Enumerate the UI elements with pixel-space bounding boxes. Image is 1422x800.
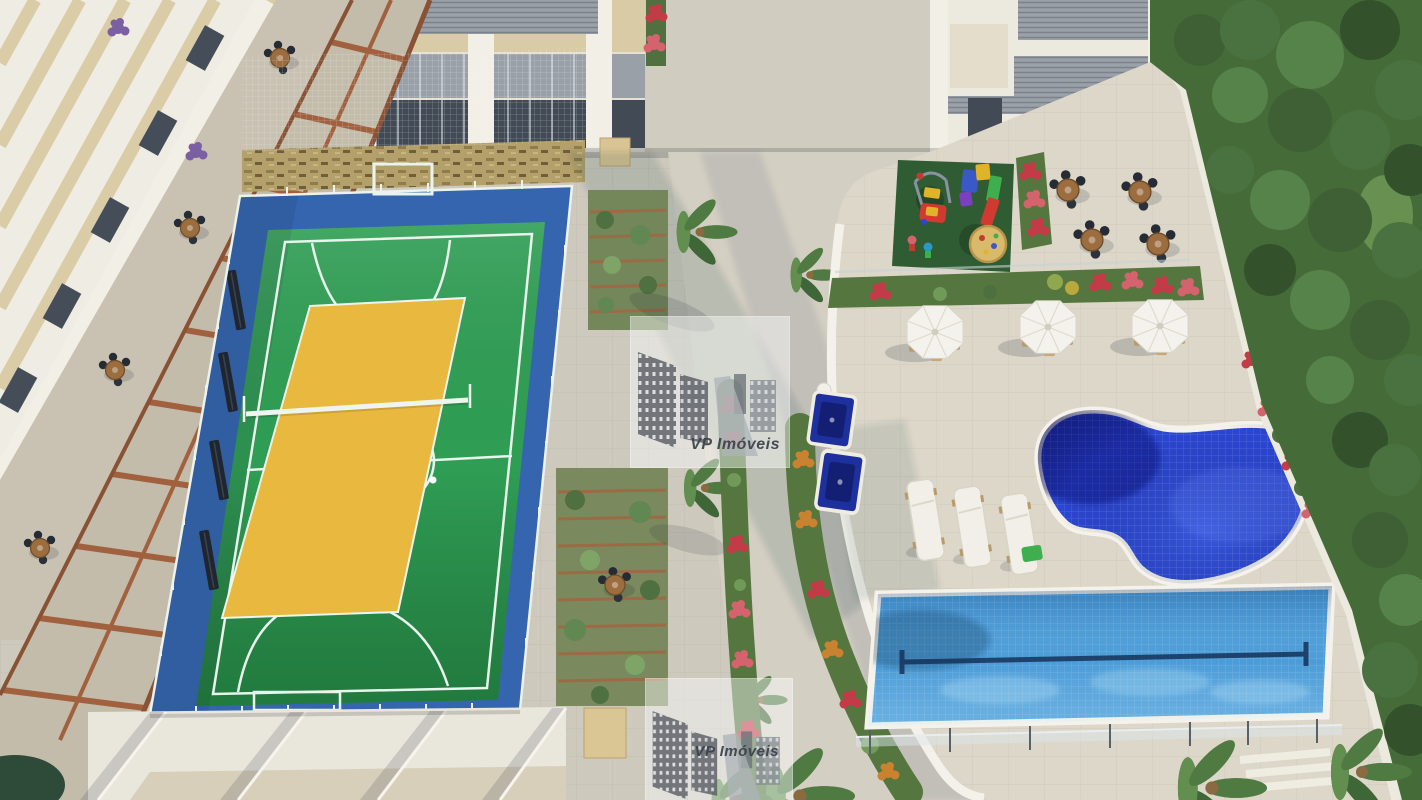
playground xyxy=(892,160,1014,272)
ball xyxy=(430,477,437,484)
umbrella-group xyxy=(885,300,1188,362)
lap-pool xyxy=(850,580,1340,730)
green-towel xyxy=(1021,545,1043,563)
aerial-render: VP Imóveis VP Imóveis xyxy=(0,0,1422,800)
toy-car xyxy=(919,203,947,225)
storage-box xyxy=(584,708,626,758)
sandbox xyxy=(970,226,1006,262)
spa-tub xyxy=(808,391,857,448)
spa-tub xyxy=(815,450,865,514)
watermark-buildings-graphic xyxy=(645,678,793,800)
watermark-logo: VP Imóveis xyxy=(630,316,790,468)
lower-pergola-garden xyxy=(556,468,668,706)
watermark-text: VP Imóveis xyxy=(695,743,779,760)
watermark-logo-bottom: VP Imóveis xyxy=(645,678,793,800)
watermark-text: VP Imóveis xyxy=(690,436,780,454)
court-netting xyxy=(242,48,586,152)
